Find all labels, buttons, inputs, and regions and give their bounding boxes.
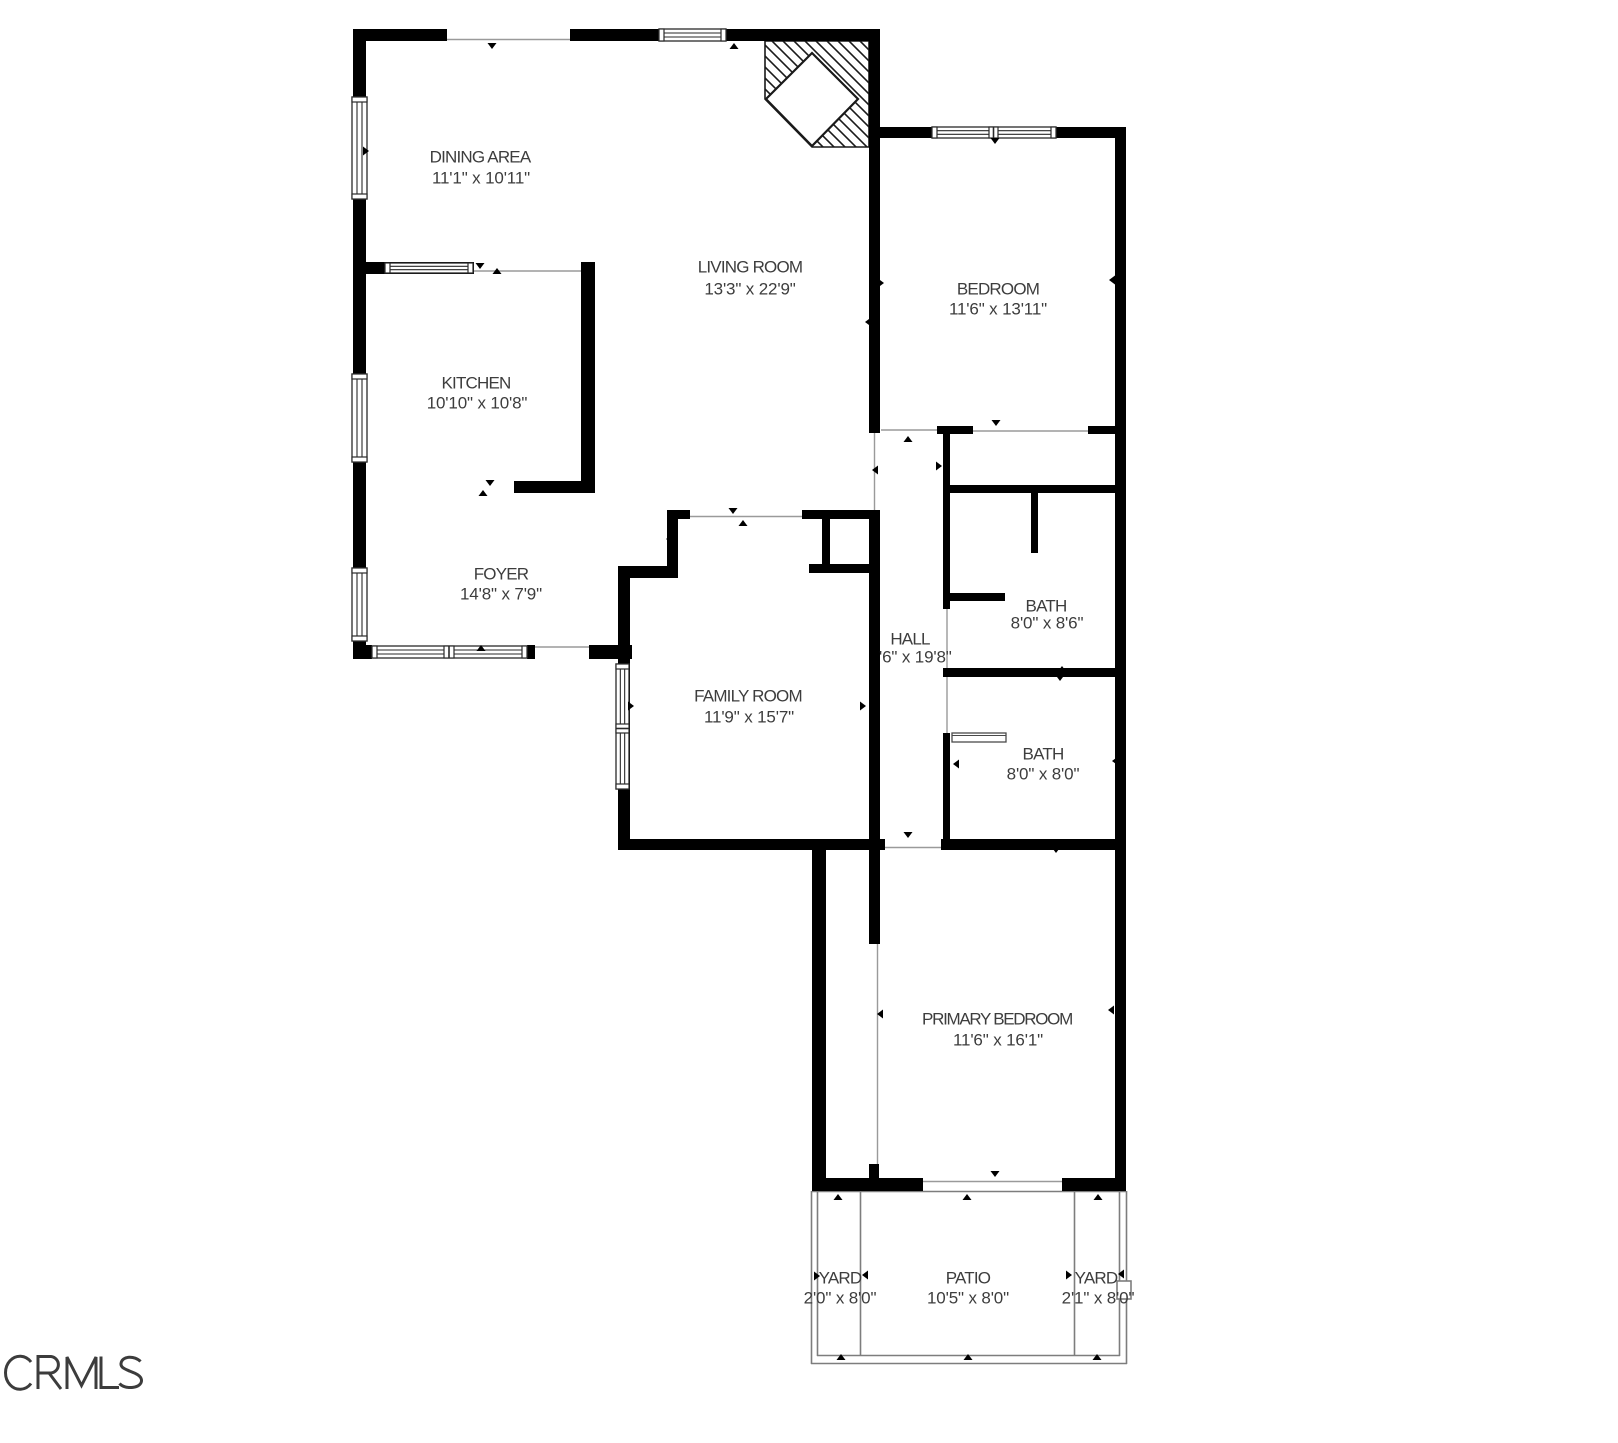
svg-text:PRIMARY BEDROOM: PRIMARY BEDROOM (922, 1010, 1072, 1029)
svg-text:11'6" x 13'11": 11'6" x 13'11" (949, 300, 1047, 319)
svg-text:11'6" x 16'1": 11'6" x 16'1" (953, 1031, 1043, 1050)
svg-text:BEDROOM: BEDROOM (957, 280, 1039, 299)
svg-text:PATIO: PATIO (946, 1269, 991, 1288)
svg-text:8'0" x 8'6": 8'0" x 8'6" (1011, 614, 1084, 633)
svg-text:8'0" x 8'0": 8'0" x 8'0" (1007, 765, 1080, 784)
svg-text:KITCHEN: KITCHEN (441, 374, 510, 393)
svg-text:FAMILY ROOM: FAMILY ROOM (694, 687, 802, 706)
svg-text:'6" x 19'8": '6" x 19'8" (879, 648, 952, 667)
svg-text:DINING AREA: DINING AREA (430, 148, 532, 167)
svg-text:LIVING ROOM: LIVING ROOM (698, 258, 803, 277)
svg-text:HALL: HALL (890, 630, 930, 649)
svg-text:2'1" x 8'0": 2'1" x 8'0" (1062, 1289, 1135, 1308)
svg-text:14'8" x 7'9": 14'8" x 7'9" (460, 585, 542, 604)
svg-text:11'1" x 10'11": 11'1" x 10'11" (432, 169, 530, 188)
svg-text:YARD: YARD (819, 1269, 862, 1288)
svg-text:YARD: YARD (1075, 1269, 1118, 1288)
svg-text:13'3" x 22'9": 13'3" x 22'9" (704, 280, 795, 299)
svg-text:FOYER: FOYER (474, 565, 529, 584)
svg-text:11'9" x 15'7": 11'9" x 15'7" (704, 708, 794, 727)
svg-text:10'10" x 10'8": 10'10" x 10'8" (427, 394, 528, 413)
svg-text:2'0" x 8'0": 2'0" x 8'0" (804, 1289, 877, 1308)
svg-text:10'5" x 8'0": 10'5" x 8'0" (927, 1289, 1009, 1308)
svg-text:BATH: BATH (1023, 745, 1064, 764)
